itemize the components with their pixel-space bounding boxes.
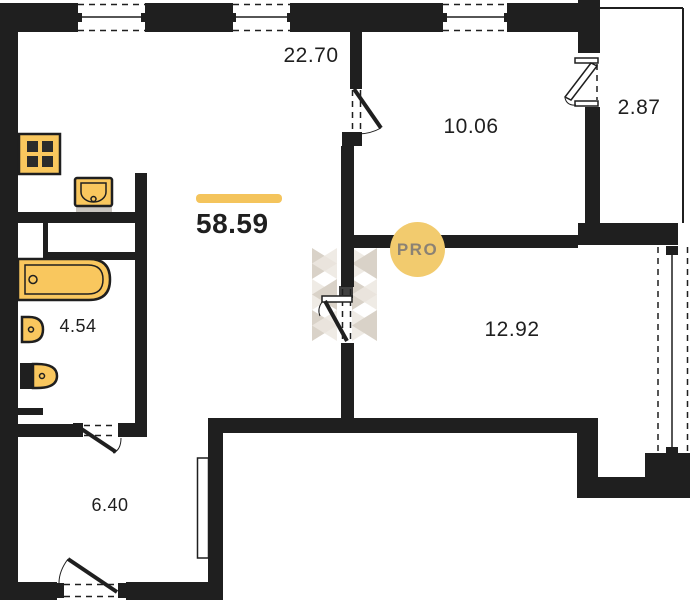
wall-segment [208, 418, 598, 433]
wall-segment [18, 424, 77, 437]
wall-segment [578, 223, 678, 245]
wall-segment [0, 582, 57, 600]
wall-segment [507, 3, 578, 32]
door-icon [565, 58, 598, 106]
door-post [57, 583, 64, 598]
wall-segment [341, 343, 354, 418]
stove-icon [19, 134, 60, 174]
door-post [118, 423, 130, 437]
room-area-room2: 12.92 [484, 318, 539, 342]
washbasin-icon [22, 317, 43, 342]
kitchen-sink-icon [75, 178, 112, 212]
wall-segment [0, 3, 18, 600]
window-icon [658, 246, 688, 456]
room-area-bedroom: 10.06 [443, 115, 498, 139]
wall-segment [578, 0, 600, 53]
room-area-bathroom: 4.54 [59, 316, 96, 337]
total-area-value: 58.59 [196, 208, 269, 240]
door-icon [59, 559, 118, 597]
door-icon [80, 426, 121, 454]
wall-segment [577, 433, 690, 498]
bathtub-icon [18, 259, 110, 300]
door-post [118, 583, 126, 598]
floor-plan: 22.70 10.06 2.87 12.92 4.54 6.40 58.59 P… [0, 0, 690, 600]
window-icon [76, 5, 147, 31]
room-area-hallway: 6.40 [91, 495, 128, 516]
wall-segment [354, 235, 578, 248]
toilet-icon [20, 363, 57, 389]
wardrobe-icon [198, 458, 209, 558]
pro-badge: PRO [390, 222, 445, 277]
wall-segment [208, 420, 223, 600]
window-icon [230, 5, 293, 31]
total-area-accent-bar [196, 194, 282, 203]
wall-segment [350, 32, 362, 89]
wall-segment [130, 423, 147, 437]
room-area-living-kitchen: 22.70 [283, 44, 338, 68]
wall-segment [43, 223, 48, 260]
door-icon [353, 89, 382, 134]
room-area-balcony: 2.87 [618, 96, 661, 120]
wall-segment [18, 408, 43, 415]
wall-segment [126, 582, 223, 600]
wall-segment [290, 3, 443, 32]
wall-segment [145, 3, 233, 32]
wall-segment [18, 212, 135, 223]
wall-segment [341, 146, 354, 287]
wall-segment [135, 173, 147, 430]
wall-segment [585, 107, 600, 223]
window-icon [441, 5, 510, 31]
